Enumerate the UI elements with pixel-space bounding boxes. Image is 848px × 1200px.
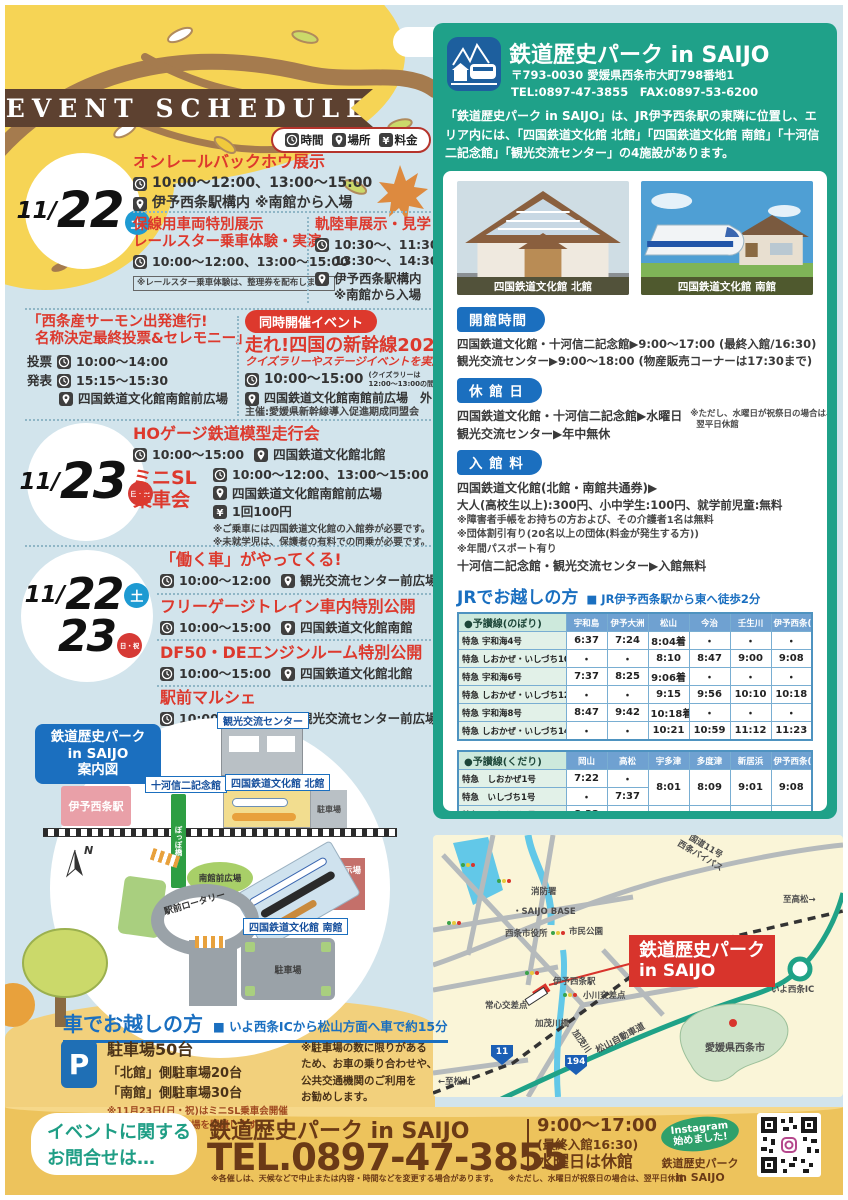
yen-icon [213, 505, 227, 519]
date-day: 22 [57, 187, 123, 235]
event-time: 10:00〜15:00 [179, 666, 271, 682]
flyer-root: EVENT SCHEDULE 時間 場所 料金 11/22土 オンレールバックホ… [0, 0, 848, 1200]
fee-note1: ※障害者手帳をお持ちの方および、その介護者1名は無料 [457, 514, 813, 529]
label-south-hall: 四国鉄道文化館 南館 [243, 918, 348, 935]
event-title: オンレールバックホウ展示 [133, 153, 372, 172]
event-host: 主催:愛媛県新幹線導入促進期成同盟会 [245, 406, 435, 420]
clock-icon [285, 133, 299, 147]
footer-notes: ※各催しは、天候などで中止または内容・時間などを変更する場合があります。 ※ただ… [211, 1173, 684, 1184]
contact-line1: イベントに関する [47, 1118, 197, 1144]
event-kiriku: 軌陸車展示・見学 10:30〜、11:30〜、 13:30〜、14:30〜 伊予… [315, 217, 433, 303]
label-parking-south: 駐車場 [274, 963, 301, 976]
table-row: 特急 宇和海6号7:378:259:06着・・・ [458, 668, 812, 686]
announce-label: 発表 [27, 373, 52, 389]
pin-icon [245, 392, 259, 406]
pin-icon [254, 448, 268, 462]
poppo-bridge: ぽっぽ橋 [171, 794, 186, 888]
table-row: 特急 しおかぜ・いしづち12号・・9:159:5610:1010:18 [458, 686, 812, 704]
instagram-qr-code [757, 1113, 821, 1177]
traffic-light [525, 971, 539, 975]
label-ogawa-crossing: 小川交差点 [583, 989, 626, 1001]
event-place: 伊予西条駅構内 [334, 271, 422, 287]
table-row: 特急 しおかぜ1号7:22・8:018:099:019:08 [458, 770, 812, 788]
date-circle-1123: 11/23日・祝 [27, 423, 145, 541]
label-kamogawa-bridge: 加茂川橋 [535, 1017, 569, 1029]
label-to-matsuyama: ←至松山 [438, 1075, 471, 1087]
car-subheading-text: ■ いよ西条ICから松山方面へ車で約15分 [213, 1016, 448, 1035]
banner-text: EVENT SCHEDULE [6, 94, 372, 123]
down-header-line: ●予讃線(くだり) [458, 751, 566, 770]
clock-icon [160, 621, 174, 635]
photo-caption-south: 四国鉄道文化館 南館 [641, 277, 813, 295]
timetable-down: ●予讃線(くだり) 岡山 高松 宇多津 多度津 新居浜 伊予西条(着) 特急 し… [457, 750, 813, 811]
park-address: 〒793-0030 愛媛県西条市大町798番地1 [511, 67, 734, 83]
traffic-light [563, 993, 577, 997]
event-working-cars: 「働く車」がやってくる! 10:00〜12:00観光交流センター前広場 [160, 551, 438, 589]
legend-time: 時間 [285, 132, 324, 148]
clock-icon [133, 255, 147, 269]
fee-badge: 入 館 料 [457, 450, 542, 475]
pin-icon [281, 667, 295, 681]
event-place-note: ※南館から入場 [334, 287, 421, 303]
event-title: 「働く車」がやってくる! [160, 551, 438, 570]
car-heading-text: 車でお越しの方 [63, 1008, 203, 1037]
date-dow2-badge: 日・祝 [117, 633, 142, 658]
fee-line2: 大人(高校生以上):300円、小中学生:100円、就学前児童:無料 [457, 497, 813, 514]
footer-closed-day: 水曜日は休館 [537, 1152, 657, 1171]
event-title: 走れ!四国の新幹線2025 [245, 335, 435, 356]
road-south [189, 940, 237, 1006]
event-note: ※レールスター乗車体験は、整理券を配布します。 [133, 276, 335, 291]
clock-icon [133, 448, 147, 462]
svg-text:N: N [84, 844, 93, 857]
event-title: DF50・DEエンジンルーム特別公開 [160, 644, 422, 663]
clock-icon [133, 177, 147, 191]
park-title: 鉄道歴史パーク in SAIJO [509, 37, 769, 69]
photo-north-hall: 四国鉄道文化館 北館 [457, 181, 629, 295]
label-north-hall: 四国鉄道文化館 北館 [225, 774, 330, 791]
event-place: 四国鉄道文化館南館前広場 [232, 486, 382, 502]
date-day1: 22 [65, 574, 122, 616]
event-onrail-backhoe: オンレールバックホウ展示 10:00〜12:00、13:00〜15:00 伊予西… [133, 153, 372, 213]
legend-fee: 料金 [379, 132, 418, 148]
carpool-note-line4: お勧めします。 [301, 1089, 437, 1105]
park-logo [447, 37, 501, 91]
label-to-takamatsu: 至高松→ [783, 893, 816, 905]
traffic-light [447, 921, 461, 925]
date-day: 23 [60, 458, 126, 506]
compass-icon: N [63, 842, 93, 882]
event-fee: 1回100円 [232, 504, 292, 520]
hours-line2: 観光交流センター▶9:00〜18:00 (物産販売コーナーは17:30まで) [457, 353, 813, 370]
announce-time: 15:15〜15:30 [76, 373, 168, 389]
legend-place: 場所 [332, 132, 371, 148]
railway-track [43, 828, 397, 837]
event-time: 10:00〜15:00 [264, 371, 363, 388]
parking-icon: P [61, 1040, 97, 1088]
contact-line2: お問合せは… [47, 1144, 197, 1170]
label-plaza: 南館前広場 [199, 872, 242, 884]
event-title: 軌陸車展示・見学 [315, 217, 433, 234]
pin-icon [59, 392, 73, 406]
closed-line2: 観光交流センター▶年中無休 [457, 425, 682, 443]
label-kanko-center: 観光交流センター [217, 712, 309, 729]
date-circle-1122: 11/22土 [25, 153, 141, 269]
label-iyo-saijo-station: 伊予西条駅 [553, 975, 596, 987]
event-time: 10:00〜15:00 [179, 620, 271, 636]
event-title-line2: 名称決定最終投票&セレモニー」 [35, 331, 233, 348]
clock-icon [160, 667, 174, 681]
table-row: 特急 しおかぜ・いしづち10号・・8:108:479:009:08 [458, 650, 812, 668]
area-map: 鉄道歴史パーク in SAIJO 国道11号西条バイパス 至高松→ 消防署 ・S… [433, 835, 843, 1097]
up-header-line: ●予讃線(のぼり) [458, 613, 566, 632]
table-row: 特急 宇和海8号8:479:4210:18着・・・ [458, 704, 812, 722]
north-hall-building [223, 790, 311, 828]
photo-caption-north: 四国鉄道文化館 北館 [457, 277, 629, 295]
closed-note2: 翌平日休館 [696, 420, 827, 432]
table-row: 特急 しおかぜ3号8:32・9:139:2110:1110:18 [458, 806, 812, 811]
parking-north: 「北館」側駐車場20台 [107, 1062, 288, 1081]
timetable-up: ●予讃線(のぼり) 宇和島 伊予大洲 松山 今治 壬生川 伊予西条(着) 特急 … [457, 612, 813, 741]
event-schedule-banner: EVENT SCHEDULE [5, 89, 373, 127]
fee-note3: ※年間パスポート有り [457, 543, 813, 558]
pin-icon [281, 574, 295, 588]
event-place: 四国鉄道文化館南館前広場 [78, 391, 228, 407]
event-time: 10:00〜15:00 [152, 447, 244, 463]
traffic-light [461, 863, 475, 867]
date-day2: 23 [58, 616, 115, 658]
footer-divider [527, 1119, 529, 1171]
jr-access-heading: JRでお越しの方■ JR伊予西条駅から東へ徒歩2分 [457, 583, 813, 608]
carpool-note: ※駐車場の数に限りがある ため、お車の乗り合わせや、 公共交通機関のご利用を お… [301, 1040, 437, 1105]
label-city-hall: 西条市役所 [505, 927, 548, 939]
event-place: 四国鉄道文化館北館 [300, 666, 413, 682]
park-tel-fax: TEL:0897-47-3855 FAX:0897-53-6200 [511, 84, 758, 100]
hours-line1: 四国鉄道文化館・十河信二記念館▶9:00〜17:00 (最終入館/16:30) [457, 336, 813, 353]
concurrent-event-badge: 同時開催イベント [245, 310, 377, 333]
park-box-line1: 鉄道歴史パーク [639, 941, 775, 962]
park-info-panel: 鉄道歴史パーク in SAIJO 〒793-0030 愛媛県西条市大町798番地… [433, 23, 837, 819]
event-place: 四国鉄道文化館北館 [273, 447, 386, 463]
label-tsunesin-crossing: 常心交差点 [485, 999, 528, 1011]
date-dow1-badge: 土 [124, 583, 149, 608]
event-title: フリーゲージトレイン車内特別公開 [160, 598, 416, 617]
clock-icon [315, 238, 329, 252]
photo-row: 四国鉄道文化館 北館 四国鉄道文化館 南館 [457, 181, 813, 295]
legend-pill: 時間 場所 料金 [271, 127, 431, 153]
vote-label: 投票 [27, 354, 52, 370]
label-ehime-saijo: 愛媛県西条市 [705, 1039, 765, 1054]
closed-note1: ※ただし、水曜日が祝祭日の場合は、 [690, 409, 827, 421]
label-parking-north: 駐車場 [317, 804, 341, 815]
event-free-gauge-train: フリーゲージトレイン車内特別公開 10:00〜15:00四国鉄道文化館南館 [160, 598, 416, 636]
guide-title3: 案内図 [78, 762, 119, 779]
pin-icon [133, 197, 147, 211]
guide-title1: 鉄道歴史パーク [51, 729, 146, 746]
label-bridge: ぽっぽ橋 [173, 826, 184, 856]
event-salmon-ceremony: 「西条産サーモン出発進行! 名称決定最終投票&セレモニー」 投票10:00〜14… [27, 314, 233, 407]
carpool-note-line2: ため、お車の乗り合わせや、 [301, 1056, 437, 1072]
park-location-box: 鉄道歴史パーク in SAIJO [629, 935, 775, 987]
parking-south: 「南館」側駐車場30台 [107, 1082, 288, 1101]
instagram-account-name: 鉄道歴史パーク in SAIJO [657, 1157, 743, 1185]
jr-heading-text: JRでお越しの方 [457, 583, 578, 608]
label-iyo-saijo-ic: いよ西条IC [771, 983, 814, 995]
contact-box: イベントに関する お問合せは… [31, 1113, 197, 1175]
pin-icon [213, 486, 227, 500]
clock-icon [245, 373, 259, 387]
clock-icon [160, 574, 174, 588]
event-time: 10:00〜12:00、13:00〜15:00 [232, 467, 429, 483]
park-info-card: 四国鉄道文化館 北館 四国鉄道文化館 南館 開 [443, 171, 827, 811]
traffic-light [551, 931, 565, 935]
date-month: 11/ [17, 198, 57, 224]
label-sogo-memorial: 十河信二記念館 [145, 776, 227, 793]
traffic-light [497, 879, 511, 883]
event-title-line1: 「西条産サーモン出発進行! [27, 314, 233, 331]
label-citizen-park: 市民公園 [569, 925, 603, 937]
closed-badge: 休 館 日 [457, 378, 542, 403]
label-saijo-base: ・SAIJO BASE [513, 905, 576, 917]
table-row: 特急 宇和海4号6:377:248:04着・・・ [458, 632, 812, 650]
event-ho-gauge: HOゲージ鉄道模型走行会 10:00〜15:00四国鉄道文化館北館 [133, 425, 386, 463]
event-df50-engine: DF50・DEエンジンルーム特別公開 10:00〜15:00四国鉄道文化館北館 [160, 644, 422, 682]
south-parking-area: 駐車場 [241, 938, 335, 1000]
photo-south-hall: 四国鉄道文化館 南館 [641, 181, 813, 295]
guide-map-title-box: 鉄道歴史パーク in SAIJO 案内図 [35, 724, 161, 784]
event-railstar: 保線用車両特別展示 レールスター乗車体験・実演 10:00〜12:00、13:0… [133, 217, 305, 291]
label-fire-station: 消防署 [531, 885, 557, 897]
table-row: 特急 しおかぜ・いしづち14号・・10:2110:5911:1211:23 [458, 722, 812, 741]
date-month: 11/ [20, 469, 60, 495]
pin-icon [332, 133, 346, 147]
jr-subheading-text: ■ JR伊予西条駅から東へ徒歩2分 [586, 591, 760, 607]
fee-line1: 四国鉄道文化館(北館・南館共通券)▶ [457, 479, 813, 497]
footer-hours-last-entry: (最終入館16:30) [537, 1137, 657, 1152]
park-box-line2: in SAIJO [639, 962, 775, 982]
crossing-stripes-2 [195, 936, 225, 948]
footer-hours-main: 9:00〜17:00 [537, 1115, 657, 1137]
pin-icon [281, 621, 295, 635]
hours-badge: 開館時間 [457, 307, 545, 332]
carpool-note-line3: 公共交通機関のご利用を [301, 1073, 437, 1089]
clock-icon [57, 374, 71, 388]
event-title-line2: 乗車会 [133, 489, 205, 511]
event-title-line1: ミニSL [133, 467, 205, 489]
station-box: 伊予西条駅 [61, 786, 131, 826]
event-title-line2: レールスター乗車体験・実演 [133, 234, 305, 251]
label-station: 伊予西条駅 [69, 798, 124, 814]
event-title: HOゲージ鉄道模型走行会 [133, 425, 386, 444]
footer-hours: 9:00〜17:00 (最終入館16:30) 水曜日は休館 [537, 1115, 657, 1171]
date-circle-1122-23: 11/22土 23日・祝 [21, 550, 153, 682]
carpool-note-line1: ※駐車場の数に限りがある [301, 1040, 437, 1056]
clock-icon [213, 468, 227, 482]
event-place: 観光交流センター前広場 [300, 573, 438, 589]
event-time: 10:00〜12:00 [179, 573, 271, 589]
event-title-line1: 保線用車両特別展示 [133, 217, 305, 234]
yen-icon [379, 133, 393, 147]
closed-line1: 四国鉄道文化館・十河信二記念館▶水曜日 [457, 407, 682, 425]
fee-note2: ※団体割引有り(20名以上の団体(料金が発生する方)) [457, 528, 813, 543]
vote-time: 10:00〜14:00 [76, 354, 168, 370]
event-shinkansen-2025: 同時開催イベント 走れ!四国の新幹線2025 クイズラリーやステージイベントを実… [245, 310, 435, 420]
parking-total: 駐車場50台 [107, 1036, 288, 1060]
guide-title2: in SAIJO [68, 746, 129, 763]
park-description: 「鉄道歴史パーク in SAIJO」は、JR伊予西条駅の東隣に位置し、エリア内に… [445, 107, 825, 163]
clock-icon [57, 355, 71, 369]
pin-icon [315, 272, 329, 286]
event-place: 四国鉄道文化館南館 [300, 620, 413, 636]
north-parking-area: 駐車場 [311, 790, 347, 828]
event-place: 四国鉄道文化館南館前広場 外 [264, 391, 432, 406]
footer-note1: ※各催しは、天候などで中止または内容・時間などを変更する場合があります。 [211, 1173, 498, 1184]
date-month: 11/ [25, 582, 65, 608]
fee-line3: 十河信二記念館・観光交流センター▶入館無料 [457, 557, 813, 575]
event-subtitle: クイズラリーやステージイベントを実施 [245, 356, 435, 369]
event-time: 10:00〜12:00、13:00〜15:00 [152, 175, 372, 193]
